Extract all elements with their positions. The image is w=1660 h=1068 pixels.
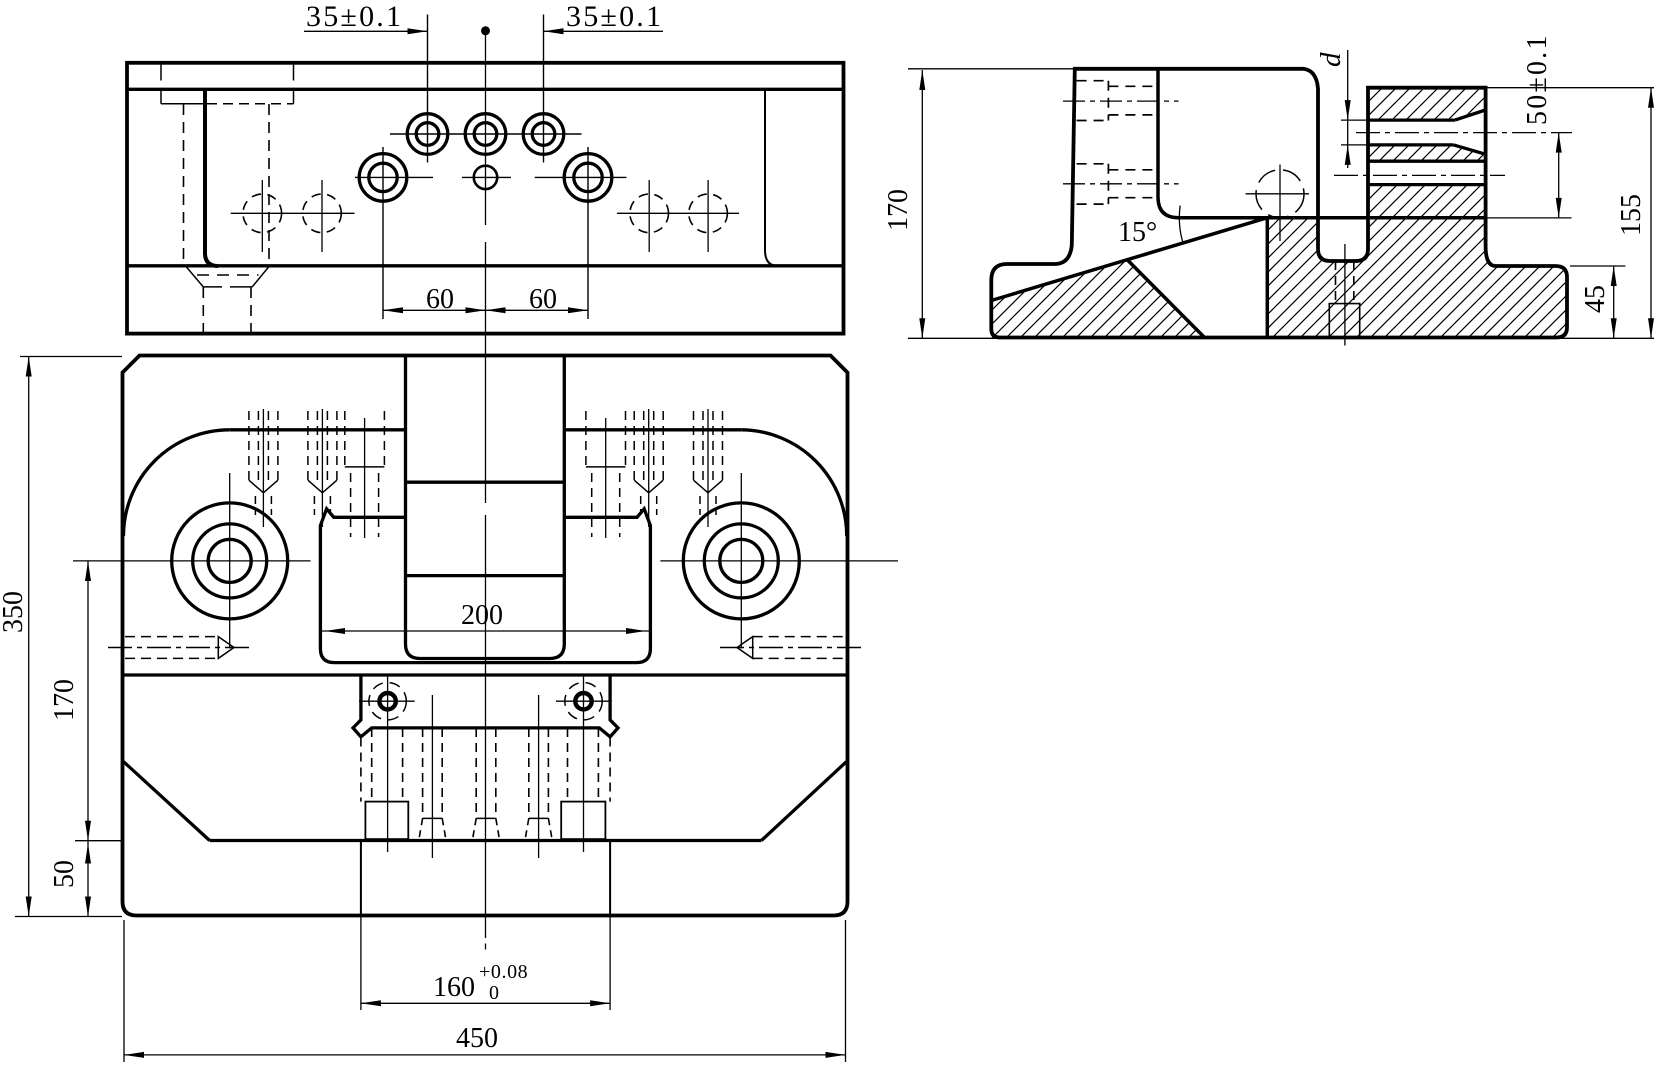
svg-text:155: 155 bbox=[1616, 194, 1647, 236]
svg-text:50: 50 bbox=[49, 860, 80, 888]
svg-text:350: 350 bbox=[0, 591, 29, 633]
svg-text:60: 60 bbox=[529, 284, 557, 315]
svg-text:200: 200 bbox=[461, 600, 503, 631]
svg-text:170: 170 bbox=[49, 679, 80, 721]
svg-text:35±0.1: 35±0.1 bbox=[566, 0, 663, 33]
svg-text:+0.08: +0.08 bbox=[479, 961, 528, 983]
svg-text:160: 160 bbox=[433, 972, 475, 1003]
svg-text:d: d bbox=[1315, 52, 1347, 67]
svg-text:45: 45 bbox=[1580, 285, 1611, 313]
svg-text:50±0.1: 50±0.1 bbox=[1522, 33, 1553, 125]
svg-text:35±0.1: 35±0.1 bbox=[306, 0, 403, 33]
svg-text:170: 170 bbox=[883, 189, 914, 231]
svg-text:60: 60 bbox=[426, 284, 454, 315]
svg-text:0: 0 bbox=[489, 982, 499, 1004]
svg-text:15°: 15° bbox=[1118, 217, 1157, 248]
svg-text:450: 450 bbox=[456, 1023, 498, 1054]
